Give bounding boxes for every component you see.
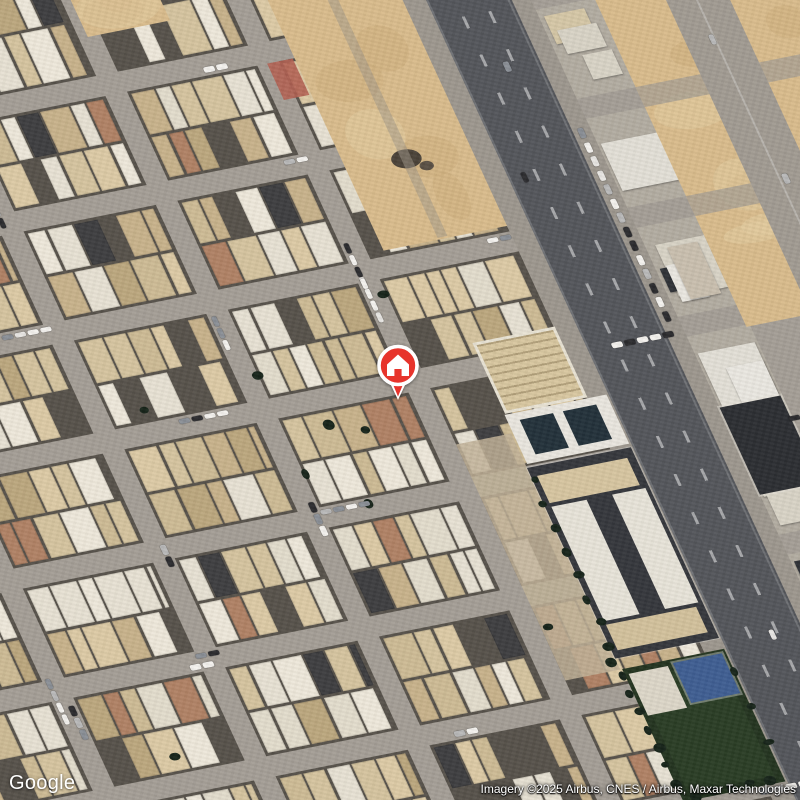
car — [332, 505, 345, 512]
car — [194, 652, 207, 659]
car — [1, 333, 14, 340]
car — [203, 65, 216, 72]
car — [319, 526, 329, 537]
car — [345, 503, 358, 510]
car — [283, 158, 296, 165]
car — [215, 63, 228, 70]
car — [308, 502, 318, 513]
car — [177, 417, 190, 424]
car — [40, 326, 53, 333]
satellite-map[interactable]: Google Imagery ©2025 Airbus, CNES / Airb… — [0, 0, 800, 800]
car — [68, 706, 78, 717]
home-marker-icon — [374, 342, 422, 402]
car — [207, 649, 220, 656]
car — [0, 217, 7, 228]
car — [73, 718, 83, 729]
car — [14, 331, 27, 338]
car — [499, 234, 512, 241]
car — [203, 412, 216, 419]
car — [319, 508, 332, 515]
car — [354, 267, 364, 278]
home-marker[interactable] — [374, 342, 422, 402]
car — [295, 156, 308, 163]
car — [348, 255, 358, 266]
car — [0, 206, 1, 217]
google-logo: Google — [9, 772, 75, 795]
car — [216, 410, 229, 417]
car — [486, 236, 499, 243]
car — [465, 727, 478, 734]
car — [189, 663, 202, 670]
car — [164, 556, 174, 567]
car — [453, 730, 466, 737]
car — [79, 729, 89, 740]
car — [44, 678, 54, 689]
car — [27, 328, 40, 335]
imagery-attribution: Imagery ©2025 Airbus, CNES / Airbus, Max… — [481, 782, 796, 796]
car — [49, 690, 59, 701]
car — [313, 514, 323, 525]
car — [159, 544, 169, 555]
car — [190, 415, 203, 422]
car — [202, 661, 215, 668]
